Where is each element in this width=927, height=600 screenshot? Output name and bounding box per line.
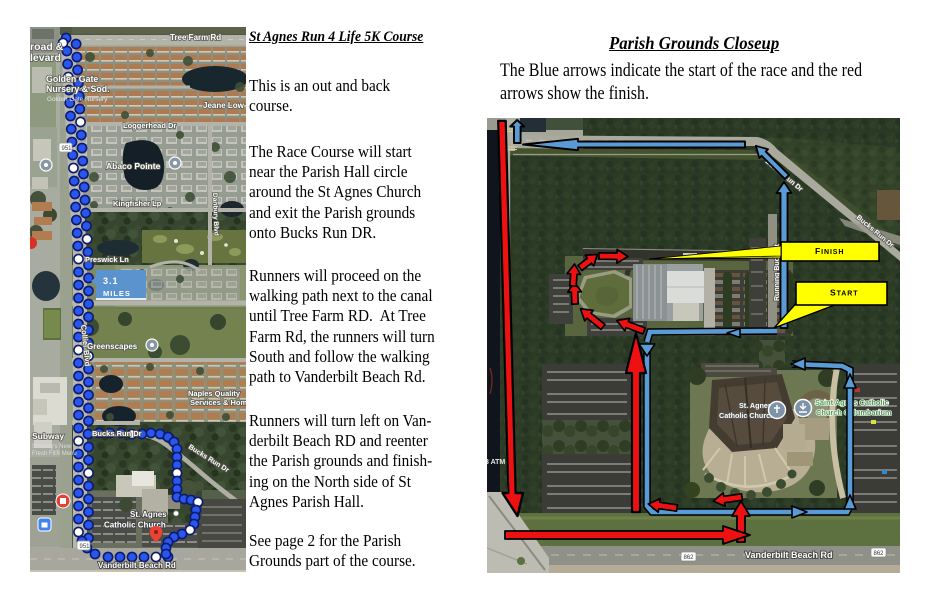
svg-text:Vanderbilt Beach Rd: Vanderbilt Beach Rd [745, 550, 833, 560]
svg-text:951: 951 [62, 146, 73, 152]
svg-text:3.1: 3.1 [103, 276, 119, 286]
svg-text:Services & Hom: Services & Hom [190, 398, 246, 407]
svg-text:862: 862 [684, 555, 695, 561]
svg-text:951: 951 [80, 544, 91, 550]
svg-text:Kingfisher Lp: Kingfisher Lp [113, 199, 162, 208]
svg-text:St. Agnes: St. Agnes [739, 401, 772, 410]
svg-text:862: 862 [874, 551, 885, 557]
svg-text:Loggerhead Dr: Loggerhead Dr [123, 121, 176, 130]
svg-text:Vanderbilt Beach Rd: Vanderbilt Beach Rd [98, 561, 176, 570]
svg-text:Tree Farm Rd: Tree Farm Rd [170, 33, 221, 42]
svg-text:Abaco Pointe: Abaco Pointe [106, 161, 161, 171]
svg-text:Danbury Blvd: Danbury Blvd [211, 193, 219, 236]
svg-text:Naples Quality: Naples Quality [188, 389, 241, 398]
svg-text:levard: levard [30, 52, 61, 64]
svg-text:Greenscapes: Greenscapes [87, 342, 138, 351]
svg-text:3 ATM: 3 ATM [487, 459, 505, 466]
svg-text:Golden Gate: Golden Gate [46, 74, 98, 84]
svg-text:Catholic Church: Catholic Church [719, 411, 775, 420]
svg-text:Subway's New: Subway's New [32, 444, 72, 450]
svg-text:Preswick Ln: Preswick Ln [85, 255, 129, 264]
svg-text:MILES: MILES [103, 289, 131, 298]
svg-text:Fresh Fit® Menu: Fresh Fit® Menu [32, 450, 77, 457]
svg-text:Jeane Low: Jeane Low [203, 101, 245, 110]
svg-text:St. Agnes: St. Agnes [130, 510, 167, 519]
svg-text:Golden Gate Nursery: Golden Gate Nursery [47, 96, 108, 103]
svg-text:Nursery & Sod.: Nursery & Sod. [46, 84, 110, 94]
svg-text:Church Columbarium: Church Columbarium [816, 408, 892, 417]
svg-text:Subway: Subway [32, 431, 64, 441]
svg-text:Bucks Run Dr: Bucks Run Dr [92, 429, 142, 438]
